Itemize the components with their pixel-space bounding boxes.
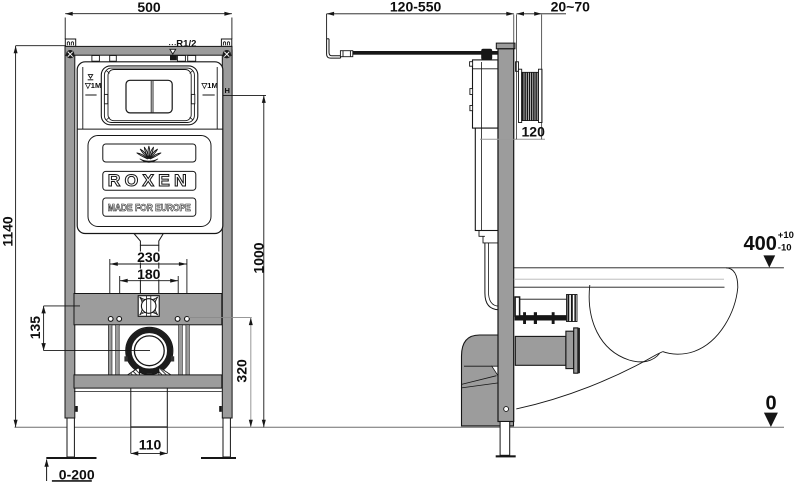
svg-text:-10: -10 (778, 242, 792, 253)
svg-text:1140: 1140 (0, 216, 15, 247)
svg-text:ROXEN: ROXEN (108, 171, 191, 190)
svg-text:20~70: 20~70 (551, 0, 591, 14)
svg-text:R1/2: R1/2 (176, 38, 196, 49)
svg-text:1000: 1000 (250, 242, 266, 273)
svg-text:▽1M: ▽1M (201, 81, 218, 90)
svg-text:H: H (225, 86, 230, 95)
svg-text:110: 110 (139, 437, 162, 453)
svg-text:+10: +10 (778, 230, 794, 241)
svg-text:230: 230 (137, 249, 161, 265)
svg-text:MADE FOR EUROPE: MADE FOR EUROPE (108, 203, 191, 214)
svg-text:▽1M: ▽1M (84, 81, 101, 90)
svg-text:400: 400 (744, 233, 777, 255)
svg-text:0: 0 (766, 393, 777, 415)
svg-text:135: 135 (27, 316, 43, 340)
svg-text:180: 180 (137, 266, 161, 282)
svg-text:0-200: 0-200 (59, 467, 95, 482)
svg-text:500: 500 (137, 0, 161, 15)
svg-text:120-550: 120-550 (390, 0, 442, 14)
svg-text:320: 320 (234, 359, 250, 383)
